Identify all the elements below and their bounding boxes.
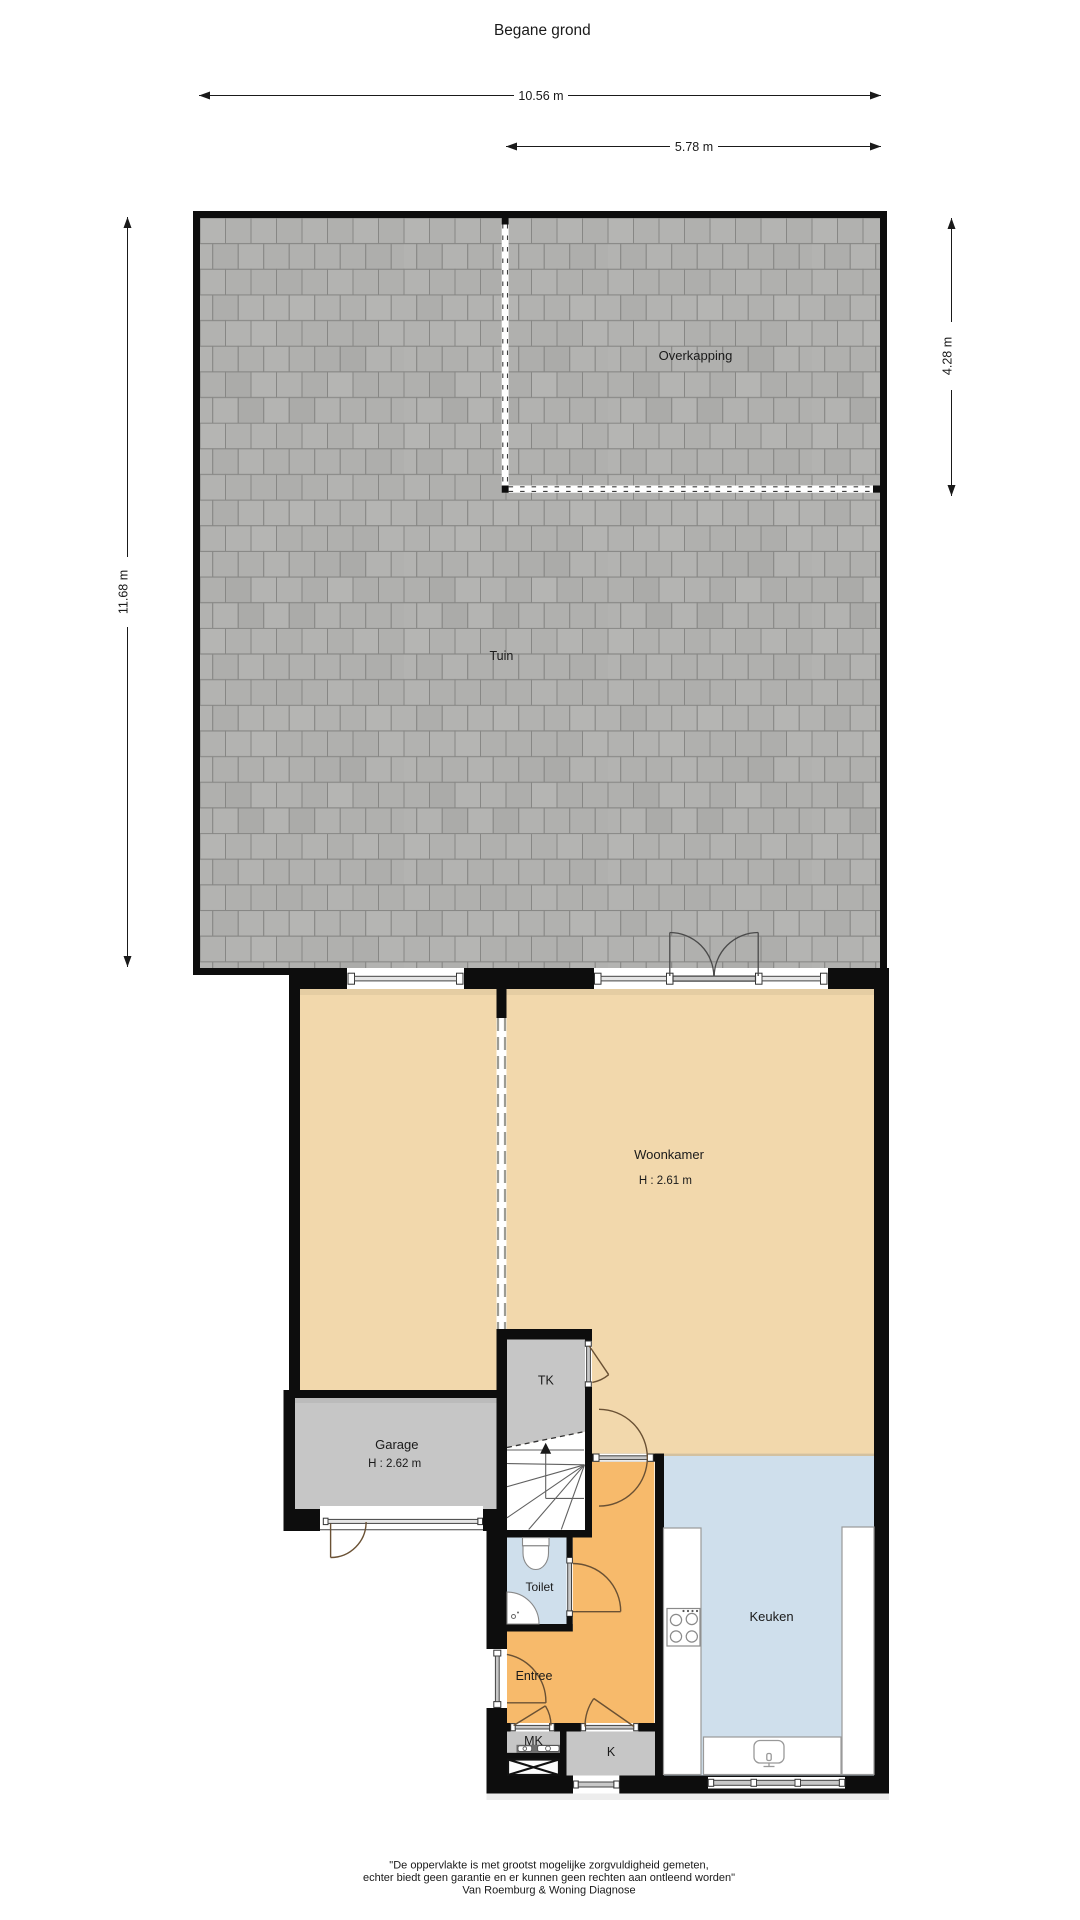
svg-text:11.68 m: 11.68 m — [117, 570, 131, 614]
svg-text:Tuin: Tuin — [489, 649, 513, 663]
svg-text:echter biedt geen garantie en: echter biedt geen garantie en er kunnen … — [363, 1872, 735, 1884]
svg-text:Garage: Garage — [375, 1437, 418, 1452]
svg-text:Begane grond: Begane grond — [494, 22, 591, 39]
svg-text:4.28 m: 4.28 m — [941, 337, 955, 375]
svg-text:K: K — [607, 1745, 616, 1759]
svg-text:H : 2.62 m: H : 2.62 m — [368, 1458, 421, 1470]
svg-text:TK: TK — [538, 1374, 555, 1388]
svg-text:Woonkamer: Woonkamer — [634, 1147, 705, 1162]
svg-text:5.78 m: 5.78 m — [675, 140, 713, 154]
svg-text:"De oppervlakte is met grootst: "De oppervlakte is met grootst mogelijke… — [389, 1860, 708, 1872]
svg-text:Toilet: Toilet — [525, 1580, 554, 1594]
svg-text:10.56 m: 10.56 m — [518, 89, 563, 103]
svg-text:H : 2.61 m: H : 2.61 m — [639, 1175, 692, 1187]
svg-text:Overkapping: Overkapping — [659, 348, 733, 363]
svg-text:MK: MK — [524, 1734, 543, 1748]
svg-text:Keuken: Keuken — [749, 1609, 793, 1624]
svg-text:Van Roemburg & Woning Diagnose: Van Roemburg & Woning Diagnose — [462, 1885, 635, 1897]
svg-text:Entree: Entree — [516, 1669, 553, 1683]
